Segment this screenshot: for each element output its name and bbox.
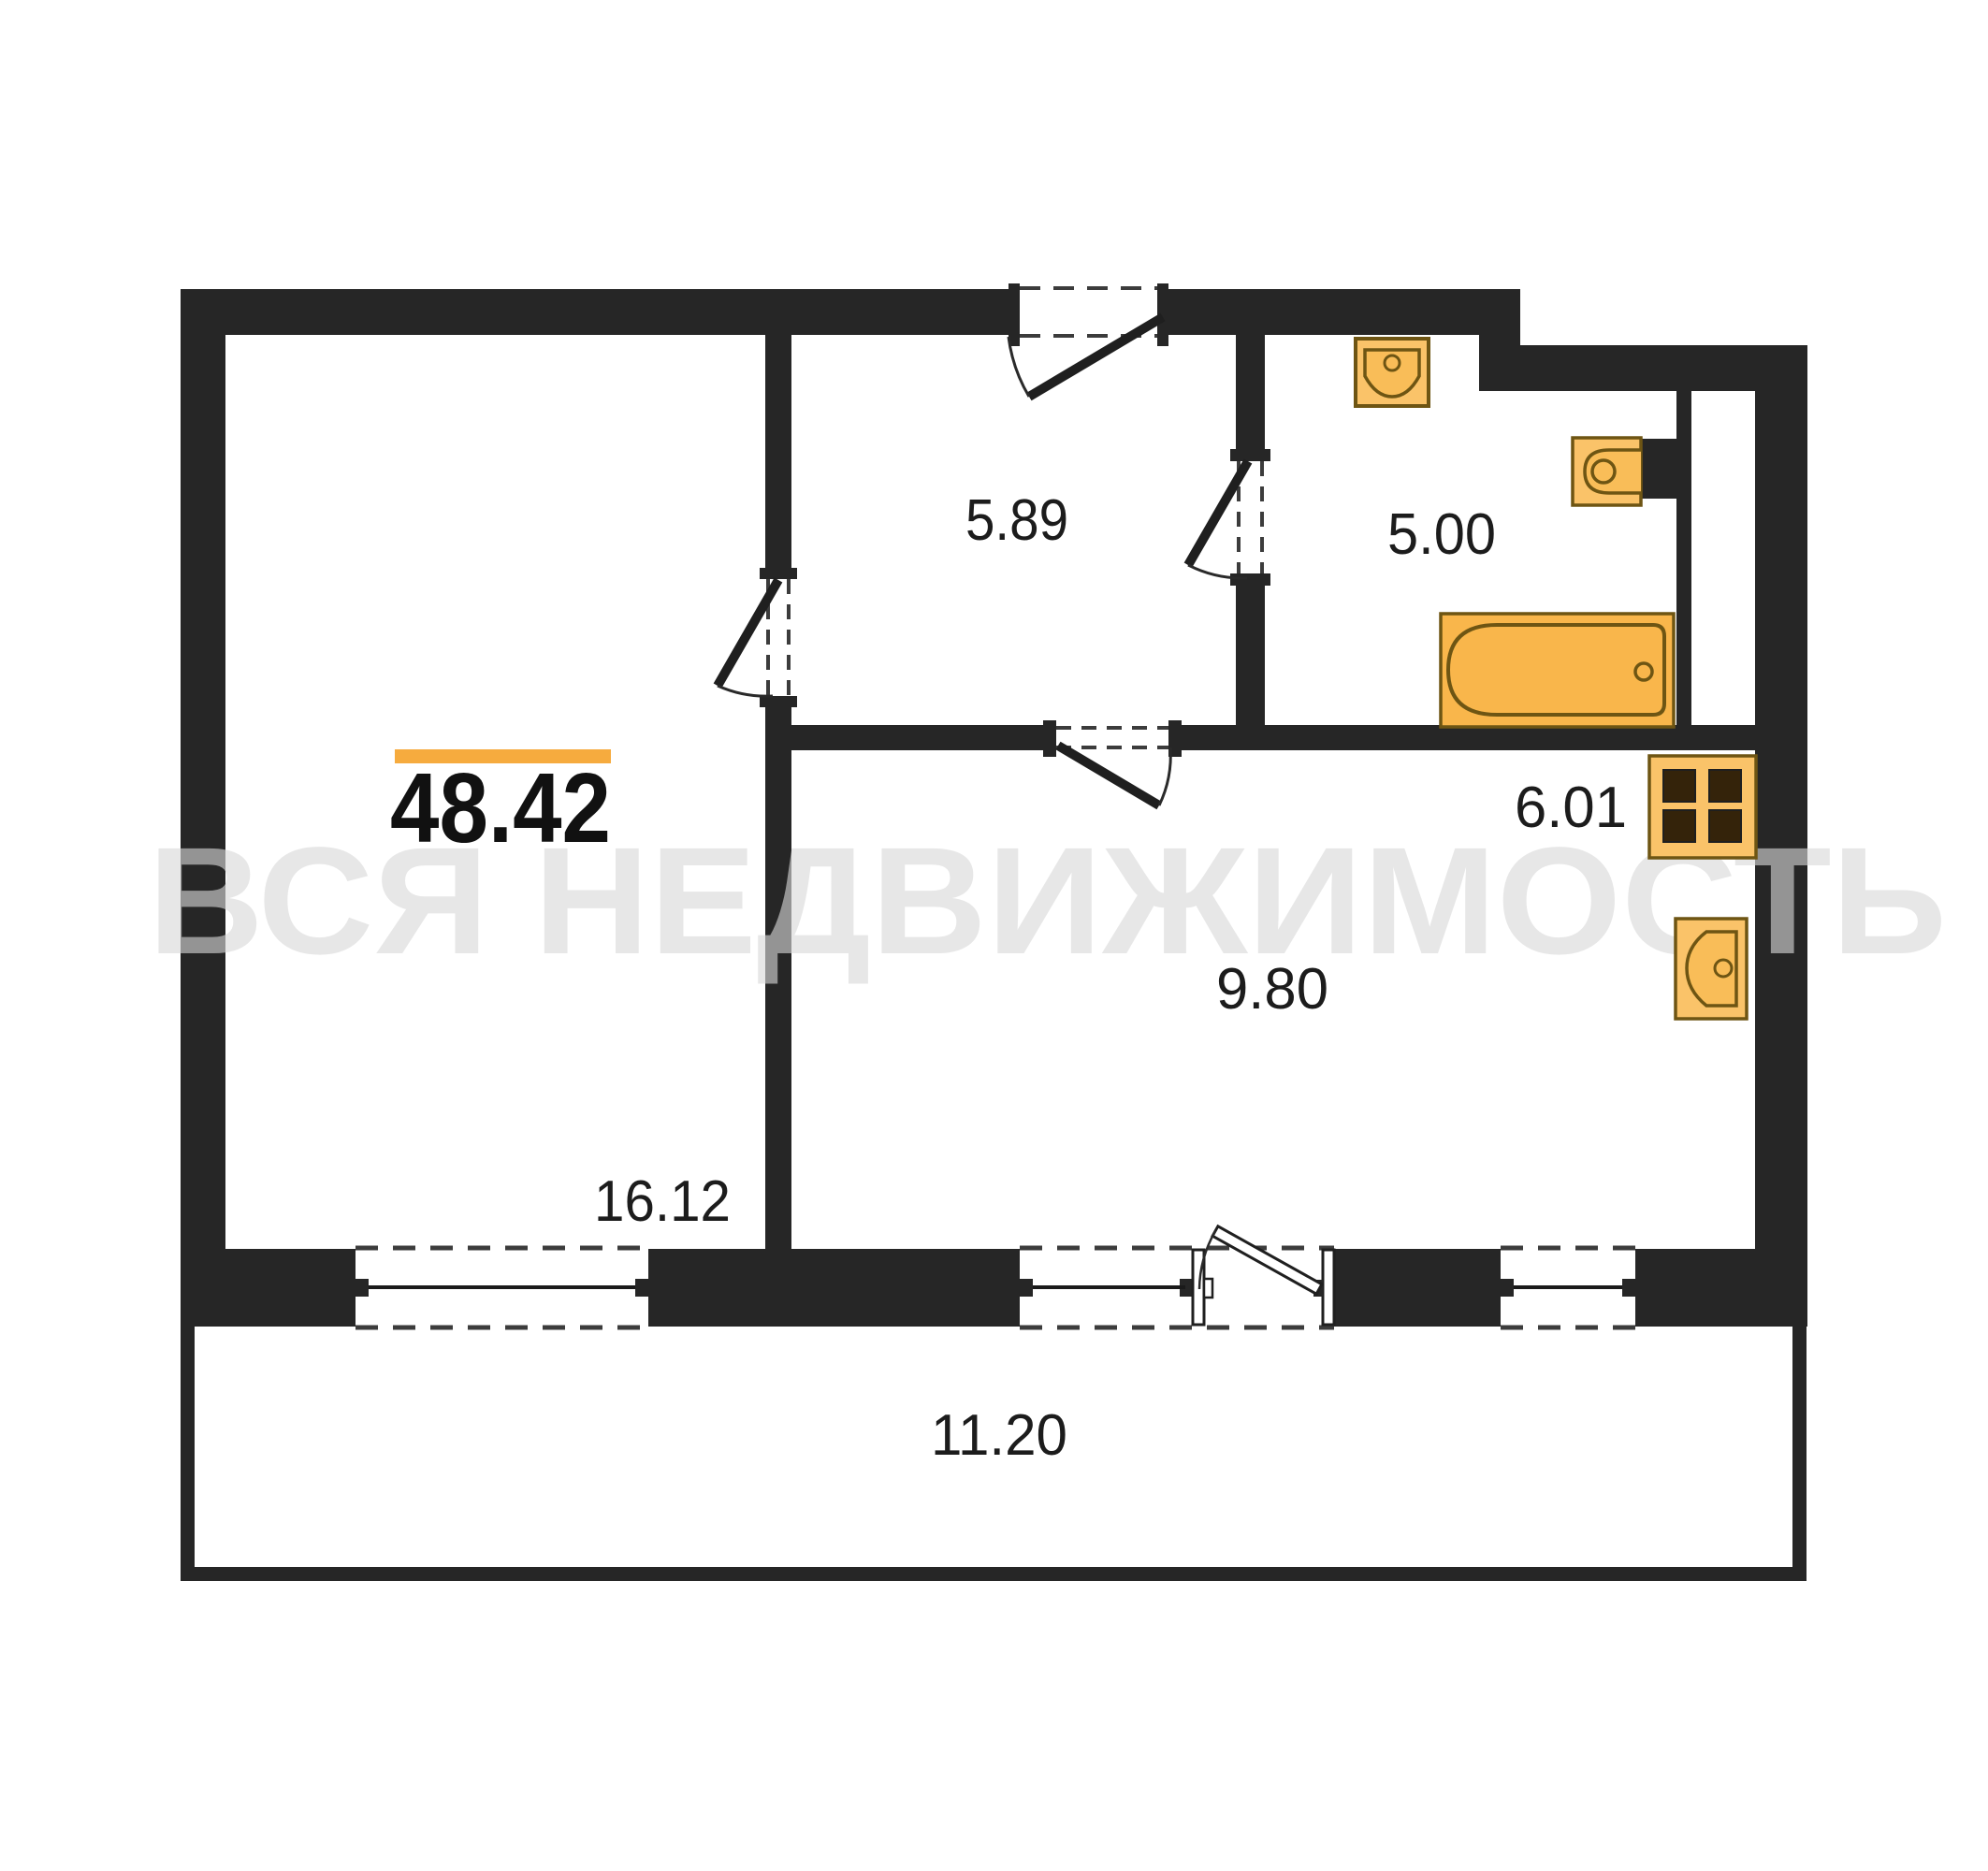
- svg-text:16.12: 16.12: [594, 1169, 731, 1234]
- svg-text:9.80: 9.80: [1216, 957, 1328, 1022]
- svg-text:48.42: 48.42: [390, 753, 611, 863]
- svg-text:5.00: 5.00: [1387, 502, 1496, 567]
- svg-text:5.89: 5.89: [965, 488, 1068, 553]
- svg-text:6.01: 6.01: [1515, 776, 1627, 840]
- svg-text:11.20: 11.20: [931, 1403, 1067, 1468]
